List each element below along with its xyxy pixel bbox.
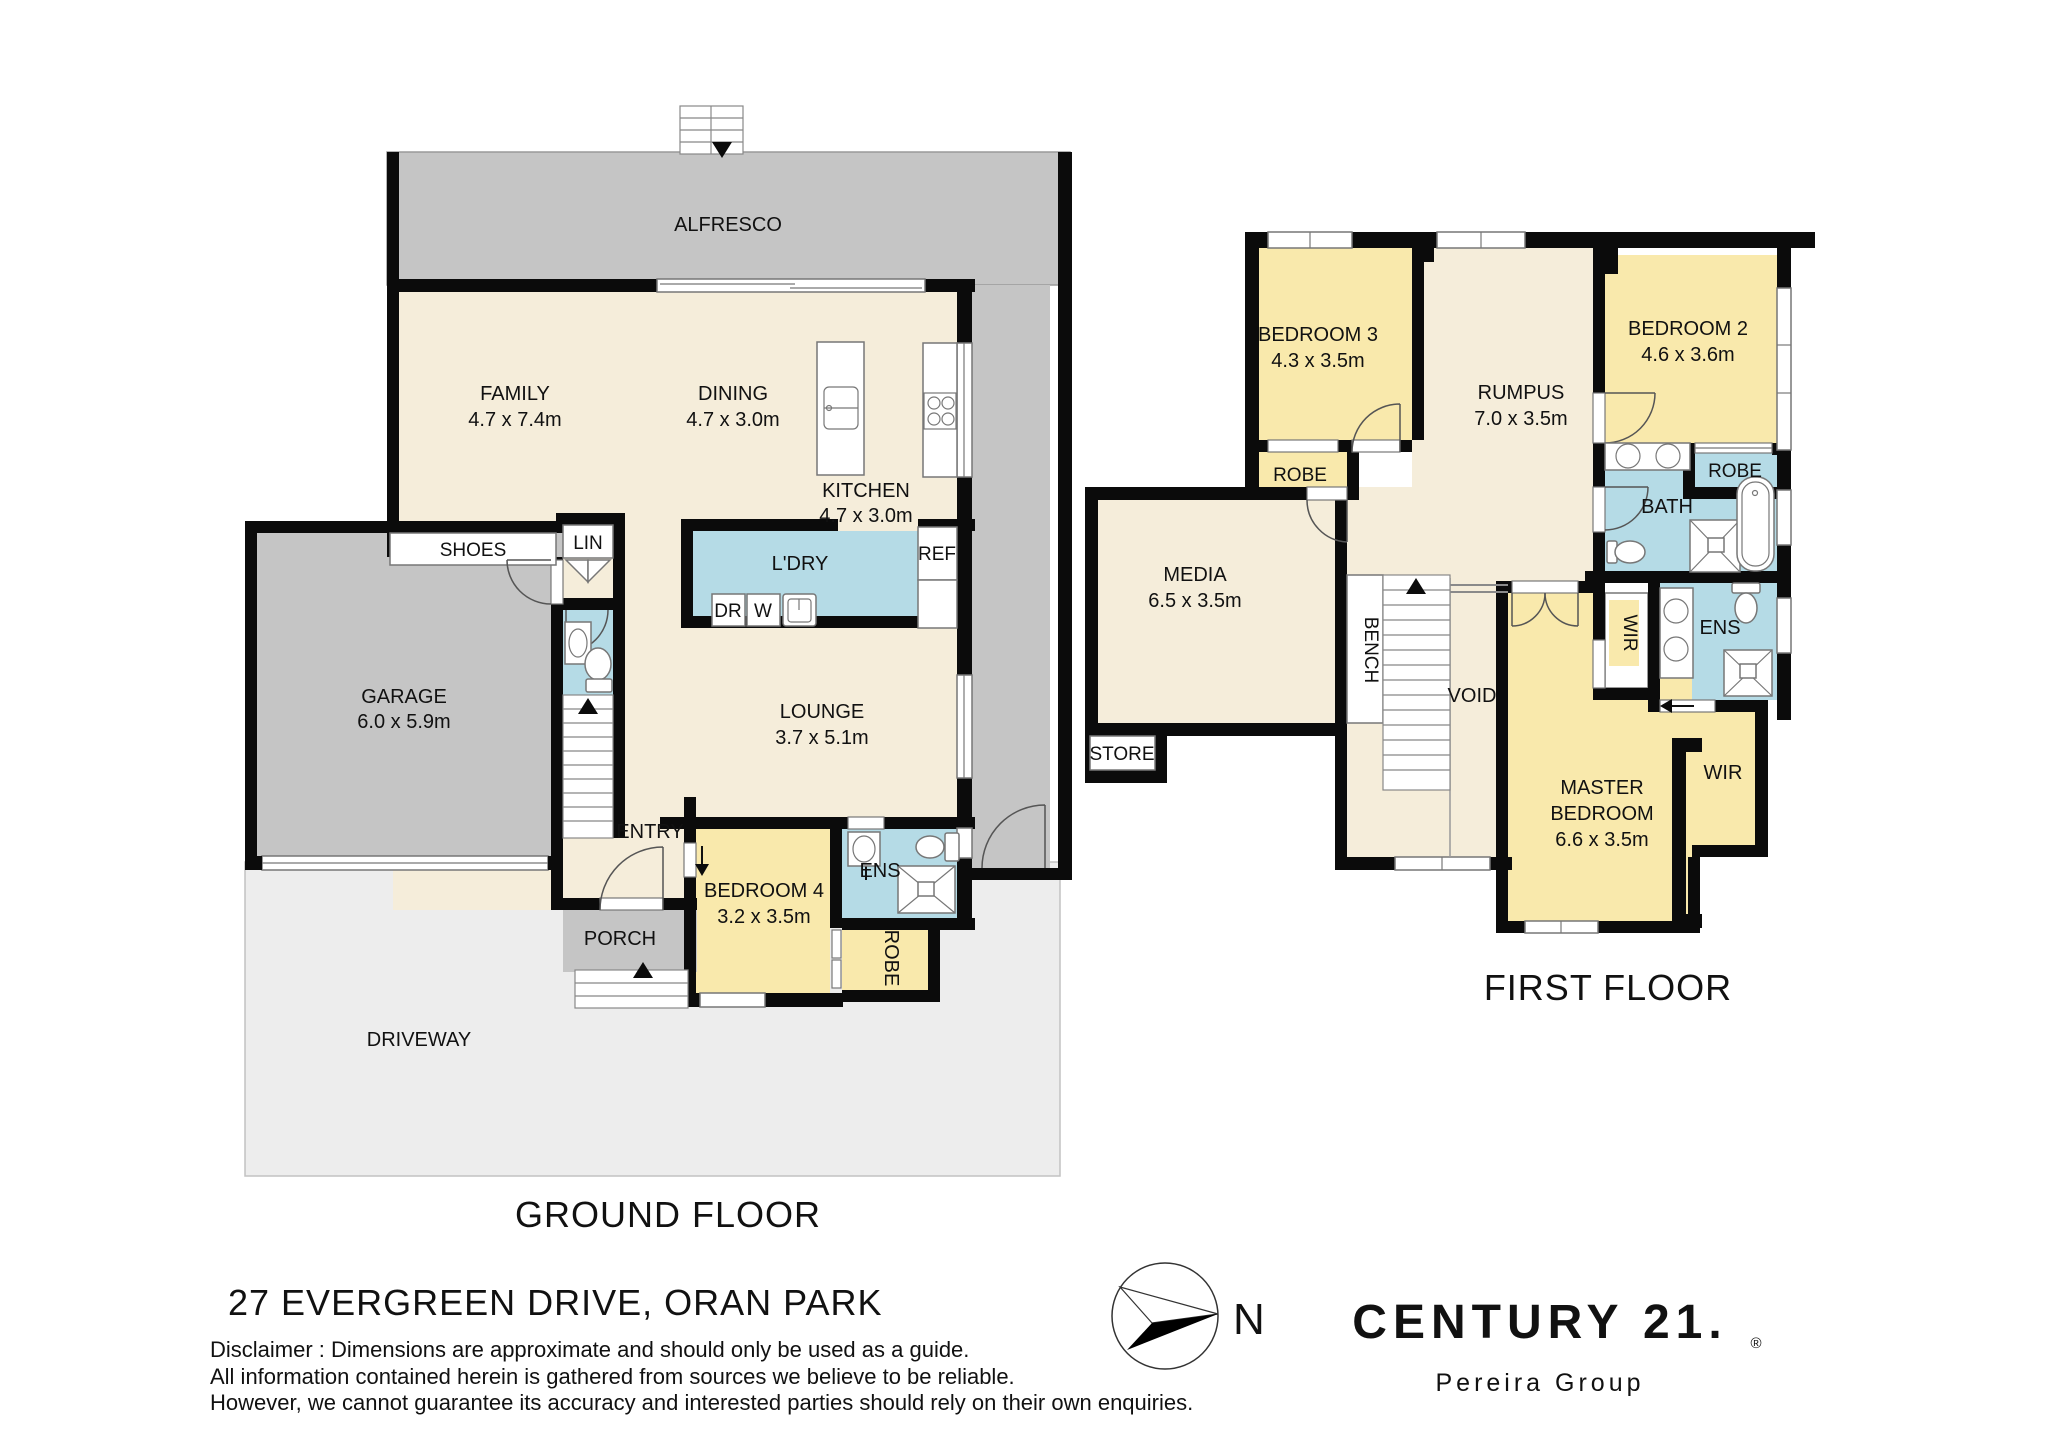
label-ref: REF — [918, 544, 956, 565]
dims-bedroom4: 3.2 x 3.5m — [717, 906, 810, 928]
compass-icon: N — [1112, 1263, 1265, 1369]
first-floor-title: FIRST FLOOR — [1484, 967, 1732, 1008]
label-robe2: ROBE — [1708, 461, 1762, 482]
laundry-counter — [918, 580, 957, 628]
label-ldry: L'DRY — [772, 553, 829, 575]
label-wir2: WIR — [1704, 762, 1743, 784]
label-lounge: LOUNGE — [780, 701, 864, 723]
dims-bedroom3: 4.3 x 3.5m — [1271, 350, 1364, 372]
dims-media: 6.5 x 3.5m — [1148, 590, 1241, 612]
ground-stairs — [563, 695, 613, 838]
disclaimer-line-1: Disclaimer : Dimensions are approximate … — [210, 1337, 969, 1362]
footer: 27 EVERGREEN DRIVE, ORAN PARK Disclaimer… — [210, 1263, 1762, 1415]
century21-logo: CENTURY 21. ® Pereira Group — [1352, 1296, 1761, 1397]
label-store: STORE — [1089, 744, 1154, 765]
label-garage: GARAGE — [361, 686, 447, 708]
dims-family: 4.7 x 7.4m — [468, 409, 561, 431]
ground-floor-title: GROUND FLOOR — [515, 1194, 821, 1235]
century21-wordmark: CENTURY 21. — [1352, 1296, 1727, 1349]
compass-north-label: N — [1233, 1295, 1265, 1344]
dims-kitchen: 4.7 x 3.0m — [819, 505, 912, 527]
label-kitchen: KITCHEN — [822, 480, 910, 502]
alfresco-steps — [680, 106, 743, 158]
kitchen-island — [817, 342, 864, 475]
first-floor-plan: BEDROOM 3 4.3 x 3.5m RUMPUS 7.0 x 3.5m B… — [1085, 232, 1815, 1008]
label-washer: W — [754, 601, 772, 622]
dims-master: 6.6 x 3.5m — [1555, 829, 1648, 851]
label-family: FAMILY — [480, 383, 550, 405]
label-ens-ground: ENS — [859, 860, 900, 882]
label-media: MEDIA — [1163, 564, 1227, 586]
ground-floor-plan: ALFRESCO FAMILY 4.7 x 7.4m DINING 4.7 x … — [245, 106, 1072, 1235]
label-alfresco: ALFRESCO — [674, 214, 782, 236]
floorplan-canvas: ALFRESCO FAMILY 4.7 x 7.4m DINING 4.7 x … — [0, 0, 2048, 1451]
label-bench: BENCH — [1360, 617, 1381, 684]
label-master-1: MASTER — [1560, 777, 1643, 799]
side-path-area — [969, 285, 1050, 868]
label-lin: LIN — [573, 533, 603, 554]
label-dining: DINING — [698, 383, 768, 405]
label-bedroom4: BEDROOM 4 — [704, 880, 824, 902]
registered-mark: ® — [1750, 1335, 1761, 1352]
label-shoes: SHOES — [440, 540, 507, 561]
label-void: VOID — [1448, 685, 1497, 707]
label-bath: BATH — [1641, 496, 1693, 518]
cooktop — [923, 343, 957, 477]
pereira-group-label: Pereira Group — [1435, 1369, 1644, 1397]
dims-bedroom2: 4.6 x 3.6m — [1641, 344, 1734, 366]
dims-garage: 6.0 x 5.9m — [357, 711, 450, 733]
label-master-2: BEDROOM — [1550, 803, 1653, 825]
disclaimer-line-2: All information contained herein is gath… — [210, 1364, 1015, 1389]
label-porch: PORCH — [584, 928, 656, 950]
dims-dining: 4.7 x 3.0m — [686, 409, 779, 431]
dims-rumpus: 7.0 x 3.5m — [1474, 408, 1567, 430]
first-stairs — [1383, 575, 1450, 790]
label-dryer: DR — [714, 601, 741, 622]
label-driveway: DRIVEWAY — [367, 1029, 471, 1051]
dims-lounge: 3.7 x 5.1m — [775, 727, 868, 749]
label-entry: ENTRY — [616, 821, 683, 843]
label-bedroom2: BEDROOM 2 — [1628, 318, 1748, 340]
property-address: 27 EVERGREEN DRIVE, ORAN PARK — [228, 1282, 883, 1323]
label-ens-first: ENS — [1699, 617, 1740, 639]
disclaimer-line-3: However, we cannot guarantee its accurac… — [210, 1390, 1193, 1415]
label-robe4: ROBE — [880, 930, 902, 987]
label-robe3: ROBE — [1273, 465, 1327, 486]
label-bedroom3: BEDROOM 3 — [1258, 324, 1378, 346]
floorplan-page: ALFRESCO FAMILY 4.7 x 7.4m DINING 4.7 x … — [0, 0, 2048, 1451]
label-wir1: WIR — [1619, 615, 1640, 652]
label-rumpus: RUMPUS — [1478, 382, 1565, 404]
